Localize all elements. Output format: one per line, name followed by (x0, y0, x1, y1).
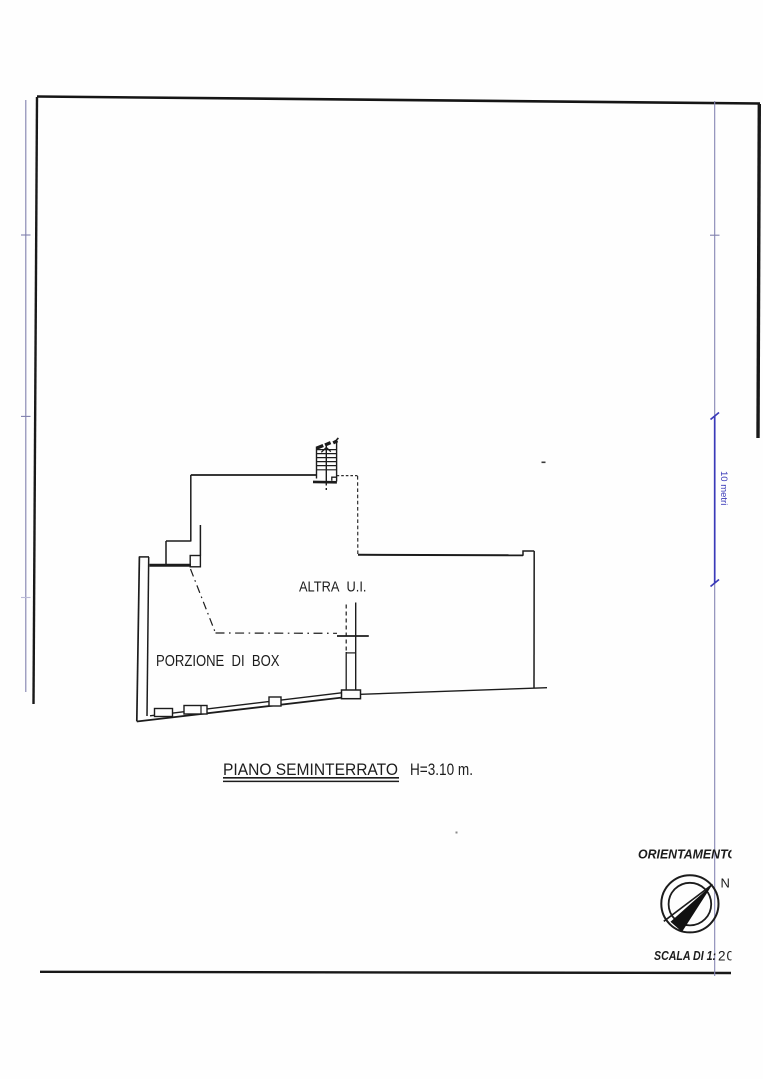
svg-text:PIANO SEMINTERRATO: PIANO SEMINTERRATO (223, 760, 398, 779)
svg-text:10 metri: 10 metri (718, 471, 729, 505)
svg-text:ORIENTAMENTO: ORIENTAMENTO (638, 847, 737, 862)
svg-text:H=3.10 m.: H=3.10 m. (410, 761, 473, 779)
svg-text:SCALA DI 1:: SCALA DI 1: (654, 948, 716, 963)
svg-text:PORZIONE DI BOX: PORZIONE DI BOX (156, 653, 280, 670)
svg-text:N: N (721, 876, 730, 891)
svg-text:ALTRA U.I.: ALTRA U.I. (299, 580, 367, 596)
